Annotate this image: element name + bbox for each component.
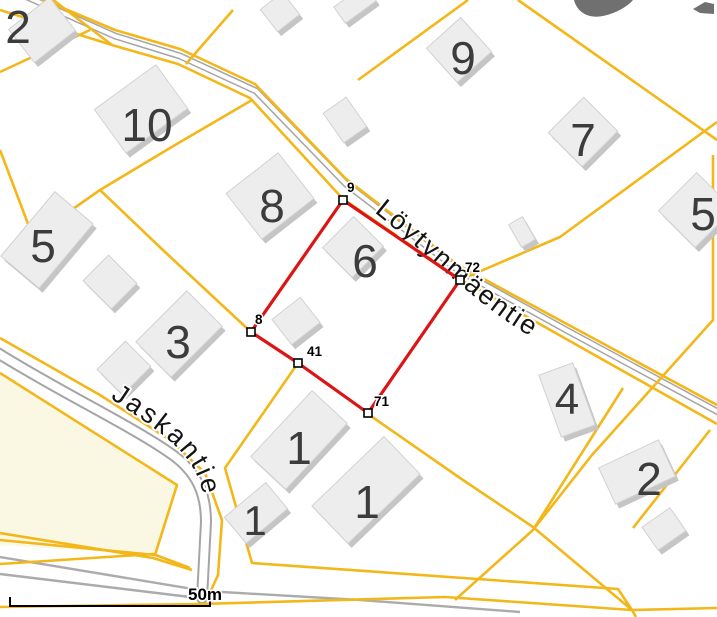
vertex-label-8: 8 <box>255 312 263 327</box>
building-roof <box>272 297 320 344</box>
parcel-number-label: 9 <box>450 32 476 84</box>
building <box>83 255 140 313</box>
building-roof-face <box>260 0 299 32</box>
cadastral-line <box>455 388 623 600</box>
building-roof-face <box>642 508 686 550</box>
building-roof <box>260 0 299 32</box>
partial-map-glyph <box>574 0 633 17</box>
parcel-number-label: 8 <box>259 180 285 232</box>
cadastral-line <box>518 0 717 140</box>
parcel-number-label: 1 <box>243 497 266 544</box>
minor-road <box>0 574 190 597</box>
vertex-label-72: 72 <box>465 260 480 275</box>
cadastral-line <box>186 10 233 64</box>
parcel-number-label: 3 <box>165 316 191 368</box>
building <box>323 97 370 147</box>
map-canvas[interactable]: 210897553642111LöytynmäentieJaskantie972… <box>0 0 717 617</box>
map-viewport[interactable]: 210897553642111LöytynmäentieJaskantie972… <box>0 0 717 617</box>
parcel-number-label: 6 <box>352 235 378 287</box>
street-name-label: Löytynmäentie <box>370 193 544 342</box>
building-roof <box>642 508 686 550</box>
parcel-number-label: 1 <box>286 422 312 474</box>
building <box>334 0 380 28</box>
street-name-text: Löytynmäentie <box>370 193 544 342</box>
vertex-marker-9[interactable] <box>339 196 347 204</box>
vertex-label-41: 41 <box>307 344 323 359</box>
parcel-number-label: 4 <box>555 375 579 424</box>
building-roof-face <box>83 255 137 309</box>
vertex-marker-71[interactable] <box>364 409 372 417</box>
building-roof-face <box>272 297 320 344</box>
parcel-number-label: 5 <box>690 188 716 240</box>
vertex-label-71: 71 <box>374 394 390 409</box>
parcel-number-label: 7 <box>570 114 596 166</box>
vertex-label-9: 9 <box>347 180 355 195</box>
building-roof <box>83 255 137 309</box>
cadastral-line <box>0 597 717 610</box>
vertex-marker-8[interactable] <box>247 328 255 336</box>
scale-bar-label: 50m <box>188 585 222 604</box>
partial-map-glyph <box>693 2 714 14</box>
parcel-number-label: 1 <box>354 476 380 528</box>
vertex-marker-41[interactable] <box>294 359 302 367</box>
vertex-marker-72[interactable] <box>456 276 464 284</box>
building <box>272 297 324 349</box>
parcel-number-label: 10 <box>121 99 172 151</box>
building <box>260 0 303 36</box>
building <box>509 217 539 252</box>
parcel-number-label: 2 <box>5 1 31 53</box>
parcel-number-label: 2 <box>636 453 662 505</box>
building <box>642 508 689 555</box>
parcel-number-label: 5 <box>30 220 56 272</box>
